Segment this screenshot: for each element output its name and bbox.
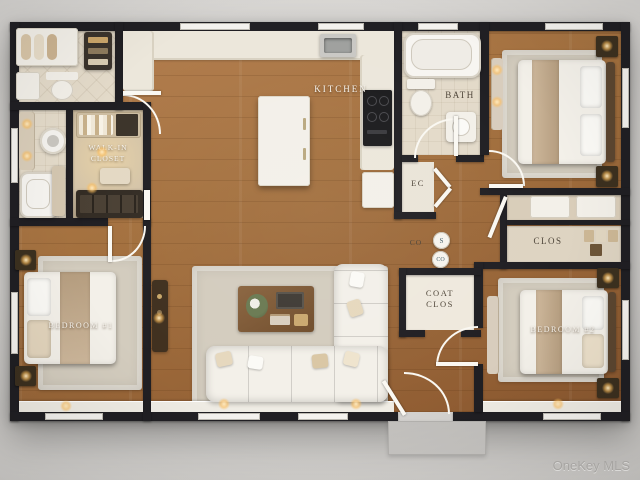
room-label-bedroom-1: BEDROOM #1 [30, 320, 132, 331]
window-bottom-bedroom2 [543, 413, 601, 420]
bath-sink-vanity [446, 112, 476, 142]
window-sill-living [151, 401, 394, 412]
floor-plan-rendering: KITCHEN BATH WALK- [0, 0, 640, 480]
window-left-bedroom1 [11, 292, 18, 354]
nightstand [15, 366, 36, 386]
coat-line2: CLOS [406, 299, 474, 310]
closet-dresser [76, 190, 143, 218]
hanging-clothes [79, 115, 113, 135]
room-label-bedroom-2: BEDROOM #2 [512, 324, 614, 335]
top-right-bed-pillows [580, 66, 602, 108]
bedroom-2-dresser [487, 296, 499, 374]
burner [367, 96, 377, 106]
wall-coatclos-bottom-a [399, 330, 425, 337]
towel-roll [47, 34, 57, 60]
wall-tlbath-bottom [10, 102, 151, 110]
wall-outer-bottom-right [453, 412, 630, 421]
cooktop [363, 90, 392, 146]
nightstand [596, 166, 618, 187]
throw-pillow [349, 271, 365, 288]
top-right-dresser [491, 58, 503, 130]
window-top-bedroom [545, 23, 603, 30]
box [608, 230, 618, 242]
wall-bedroom1-living [143, 218, 151, 421]
co-detector-symbol: CO [432, 251, 449, 268]
window-top-bath [418, 23, 458, 30]
bedroom-1-runner [60, 272, 90, 364]
wall-coatclos-top [399, 268, 481, 275]
cooktop-controls [367, 130, 387, 134]
vanity-strip [19, 112, 35, 170]
wall-tlbath-kitchen [115, 22, 123, 110]
alcove-dresser [576, 196, 616, 218]
toilet [407, 79, 435, 117]
shelf-items [88, 37, 108, 43]
wall-bath-bedroomtr [480, 22, 489, 155]
storage-boxes [584, 228, 618, 258]
wall-kitchen-bath [394, 22, 402, 219]
window-left-bath [11, 128, 18, 183]
bedroom-2-pillows [582, 334, 604, 368]
towel-roll [34, 34, 44, 60]
window-sill-bedroom2 [483, 401, 621, 412]
window-top-kitchen-2 [318, 23, 364, 30]
coffee-table [238, 286, 314, 332]
bath-cabinet [16, 72, 40, 100]
nightstand [597, 378, 619, 398]
window-bottom-bedroom1 [45, 413, 103, 420]
front-stoop [388, 421, 486, 455]
top-right-bed-runner [532, 60, 559, 164]
nightstand [15, 250, 36, 270]
alcove-dresser [530, 196, 570, 218]
toilet-2-tank [46, 72, 78, 80]
top-right-bed-pillows [580, 114, 602, 156]
towel-shelf [16, 28, 78, 66]
walk-in-line1: WALK-IN [73, 142, 143, 153]
window-bottom-living-1 [198, 413, 260, 420]
door-leaf-kitchen-hall [123, 91, 161, 95]
room-label-ec: EC [402, 178, 434, 189]
door-leaf-bedroom-2 [436, 362, 478, 366]
throw-pillow [247, 355, 264, 370]
toilet-bowl [410, 90, 432, 116]
laptop [276, 292, 304, 309]
console-knob [157, 294, 162, 299]
round-mirror [40, 128, 66, 154]
wall-bedroom2-left-b [474, 364, 483, 412]
bath-shelf-unit [84, 32, 112, 70]
flower-vase [246, 294, 268, 318]
room-label-clos: CLOS [516, 236, 580, 247]
burner [379, 96, 389, 106]
box [596, 230, 606, 242]
wall-ec-bottom [394, 212, 436, 219]
coat-line1: COAT [406, 288, 474, 299]
media-console [152, 280, 168, 352]
smoke-detector-symbol: S [433, 232, 450, 249]
watermark: OneKey MLS [553, 458, 630, 473]
vanity-column [52, 166, 65, 216]
wall-leftbath-walkin [66, 110, 73, 222]
tray [294, 314, 308, 326]
kitchen-island [258, 96, 310, 186]
basin-inner [26, 179, 50, 209]
closet-shelf-top [76, 112, 141, 138]
door-leaf-walk-in [144, 190, 150, 220]
door-leaf-bedroom-1 [108, 226, 112, 262]
console-knob [157, 310, 162, 315]
wall-bath-bottom-b [456, 155, 484, 162]
walk-in-line2: CLOSET [73, 153, 143, 164]
window-bottom-living-2 [298, 413, 348, 420]
door-leaf-bath [454, 116, 458, 156]
window-right-bedroomtr [622, 68, 629, 128]
bathtub-basin [411, 39, 472, 70]
kitchen-sink [320, 34, 356, 57]
wall-alcove-closet [507, 220, 630, 225]
books [270, 316, 290, 325]
island-handle [303, 118, 306, 130]
towel-roll [21, 34, 31, 60]
throw-pillow [311, 353, 328, 369]
kitchen-sink-basin [324, 38, 352, 53]
co-annotation: CO [405, 237, 427, 248]
refrigerator [362, 172, 394, 208]
window-right-bedroom2 [622, 300, 629, 360]
wall-bedroomtr-bottom [480, 188, 630, 195]
box [590, 244, 602, 256]
closet-cubby [116, 114, 138, 136]
kitchen-counter-left [123, 31, 154, 91]
door-leaf-top-right-bedroom [489, 184, 523, 188]
room-label-coat-closet: COAT CLOS [406, 288, 474, 310]
wall-coatclos-bottom-b [461, 330, 481, 337]
burner [379, 112, 389, 122]
bathtub [404, 33, 481, 78]
closet-bench [100, 168, 130, 184]
wall-coatclos-left [399, 268, 406, 337]
top-right-headboard [606, 62, 615, 162]
room-label-bath: BATH [432, 90, 488, 101]
sectional-sofa-bottom [206, 346, 388, 402]
window-sill-bedroom1 [19, 401, 143, 412]
wall-bath-bottom-a [402, 155, 418, 162]
toilet-tank [407, 79, 435, 89]
island-handle [303, 148, 306, 160]
nightstand [597, 268, 619, 288]
nightstand [596, 36, 618, 57]
mirror-face [47, 135, 59, 147]
shelf-items [88, 48, 108, 54]
burner [367, 112, 377, 122]
shelf-items [88, 59, 108, 65]
toilet-2-bowl [51, 80, 73, 100]
room-label-walk-in-closet: WALK-IN CLOSET [73, 142, 143, 164]
dresser-drawers [80, 195, 138, 213]
wall-bedroom1-top [10, 218, 108, 226]
box [584, 230, 594, 242]
bedroom-1-pillows [27, 278, 51, 316]
toilet-2 [46, 72, 78, 102]
room-label-kitchen: KITCHEN [301, 84, 381, 95]
window-top-kitchen [180, 23, 250, 30]
